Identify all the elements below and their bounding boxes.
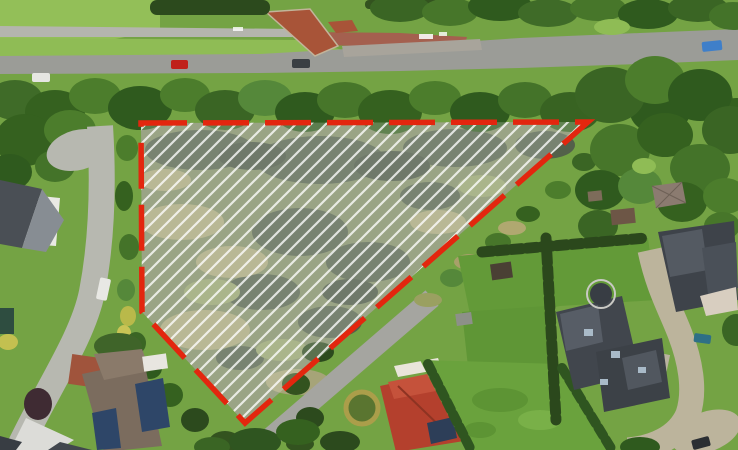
solar-panel-array: [92, 408, 121, 450]
grass-gap: [632, 158, 656, 174]
tree-dark-ornamental: [24, 388, 52, 420]
house-right-gable: [662, 229, 708, 277]
flower-bed-circle: [346, 392, 378, 424]
garden-shed: [490, 262, 513, 281]
car-blue: [702, 40, 723, 52]
skylight: [600, 379, 608, 385]
turret-roof: [590, 283, 612, 305]
aerial-photo-viewport: [0, 0, 738, 450]
aerial-photo: [0, 0, 738, 450]
car-white: [32, 73, 50, 82]
bike-lane-marking: [233, 27, 243, 31]
car-dark: [292, 59, 310, 68]
skylight: [638, 367, 646, 373]
house-right-gable: [702, 242, 738, 294]
bush: [117, 279, 135, 301]
car-red: [171, 60, 188, 69]
dry-grass-patch: [498, 221, 526, 235]
garden-shed: [588, 190, 603, 201]
skylight: [584, 329, 593, 336]
bush: [545, 181, 571, 199]
bush: [115, 181, 133, 211]
bike-lane-marking: [419, 34, 433, 39]
bush: [440, 269, 464, 287]
bush: [516, 206, 540, 222]
bike-lane-marking: [439, 32, 447, 36]
grass-gap: [594, 19, 630, 35]
garden-shed: [610, 208, 635, 225]
dry-grass-patch: [414, 293, 442, 307]
bush: [181, 408, 209, 432]
meadow-texture: [472, 388, 528, 412]
tree: [276, 419, 320, 445]
garden-dark-patch: [0, 308, 14, 334]
tree: [518, 0, 578, 27]
bush: [119, 234, 139, 260]
hedge-row: [150, 0, 270, 15]
flower-bush-yellow: [120, 306, 136, 326]
bush: [116, 135, 138, 161]
garden-shed: [455, 312, 473, 326]
tree: [575, 170, 625, 210]
skylight: [611, 351, 620, 358]
